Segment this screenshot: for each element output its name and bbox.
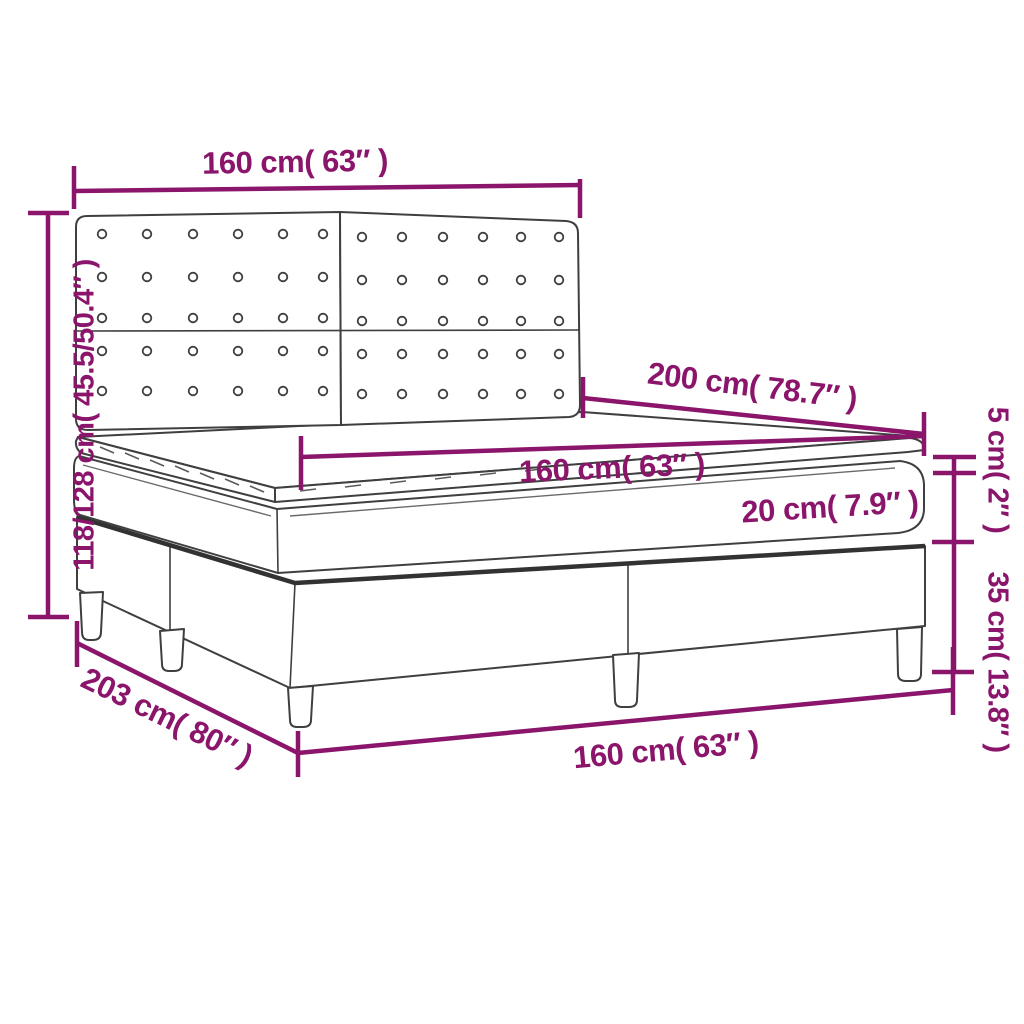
dim-headboard-width: 160 cm( 63″ ) (74, 143, 580, 218)
tufting-button (398, 317, 407, 326)
tufting-button (555, 390, 564, 399)
tufting-button (319, 387, 328, 396)
tufting-button (143, 387, 152, 396)
tufting-button (319, 273, 328, 282)
tufting-button (234, 387, 243, 396)
tufting-button (358, 317, 367, 326)
bed-leg (160, 629, 184, 671)
tufting-button (479, 276, 488, 285)
tufting-button (398, 350, 407, 359)
headboard-horizontal-seam (76, 330, 579, 331)
tufting-button (358, 350, 367, 359)
tufting-button (439, 350, 448, 359)
tufting-button (398, 390, 407, 399)
tufting-button (319, 314, 328, 323)
tufting-button (555, 350, 564, 359)
bed-leg (897, 627, 922, 681)
tufting-button (555, 317, 564, 326)
tufting-button (143, 347, 152, 356)
tufting-button (189, 314, 198, 323)
tufting-button (479, 350, 488, 359)
tufting-button (555, 276, 564, 285)
tufting-button (98, 230, 107, 239)
tufting-button (479, 317, 488, 326)
bed-leg (288, 686, 313, 727)
tufting-button (189, 273, 198, 282)
tufting-button (189, 230, 198, 239)
tufting-button (479, 233, 488, 242)
tufting-button (279, 230, 288, 239)
tufting-button (234, 230, 243, 239)
tufting-button (279, 273, 288, 282)
tufting-button (279, 314, 288, 323)
tufting-button (279, 387, 288, 396)
bed-leg (80, 592, 103, 640)
dim-topper-thickness-label: 5 cm( 2″ ) (981, 407, 1013, 534)
tufting-button (358, 390, 367, 399)
dimension-diagram: 160 cm( 63″ ) 118/128 cm( 45.5/50.4″ ) 2… (0, 0, 1024, 1024)
tufting-button (358, 276, 367, 285)
tufting-button (398, 276, 407, 285)
tufting-button (234, 347, 243, 356)
headboard-right-panel (340, 212, 580, 425)
tufting-button (517, 317, 526, 326)
tufting-button (517, 350, 526, 359)
tufting-button (517, 233, 526, 242)
tufting-button (279, 347, 288, 356)
tufting-button (517, 390, 526, 399)
tufting-button (234, 273, 243, 282)
tufting-button (439, 390, 448, 399)
dim-base-width-label: 160 cm( 63″ ) (572, 724, 760, 775)
bed-leg (613, 653, 639, 707)
tufting-button (517, 276, 526, 285)
tufting-button (319, 230, 328, 239)
tufting-button (189, 387, 198, 396)
tufting-button (189, 347, 198, 356)
tufting-button (439, 317, 448, 326)
dim-overall-height-label: 118/128 cm( 45.5/50.4″ ) (69, 259, 101, 570)
tufting-button (234, 314, 243, 323)
dim-overall-height: 118/128 cm( 45.5/50.4″ ) (28, 213, 101, 617)
dim-base-height-label: 35 cm( 13.8″ ) (981, 572, 1013, 753)
tufting-button (555, 233, 564, 242)
tufting-button (143, 273, 152, 282)
tufting-button (358, 233, 367, 242)
tufting-button (143, 230, 152, 239)
tufting-button (398, 233, 407, 242)
tufting-button (479, 390, 488, 399)
dim-base-height: 35 cm( 13.8″ ) (932, 542, 1013, 753)
tufting-button (439, 233, 448, 242)
tufting-button (319, 347, 328, 356)
headboard-left-panel (76, 212, 341, 430)
tufting-button (143, 314, 152, 323)
headboard (76, 212, 580, 430)
tufting-button (439, 276, 448, 285)
dim-headboard-width-label: 160 cm( 63″ ) (202, 143, 388, 181)
bed-illustration: 160 cm( 63″ ) 118/128 cm( 45.5/50.4″ ) 2… (0, 0, 1024, 1024)
dim-overall-length-label: 203 cm( 80″ ) (76, 660, 258, 773)
